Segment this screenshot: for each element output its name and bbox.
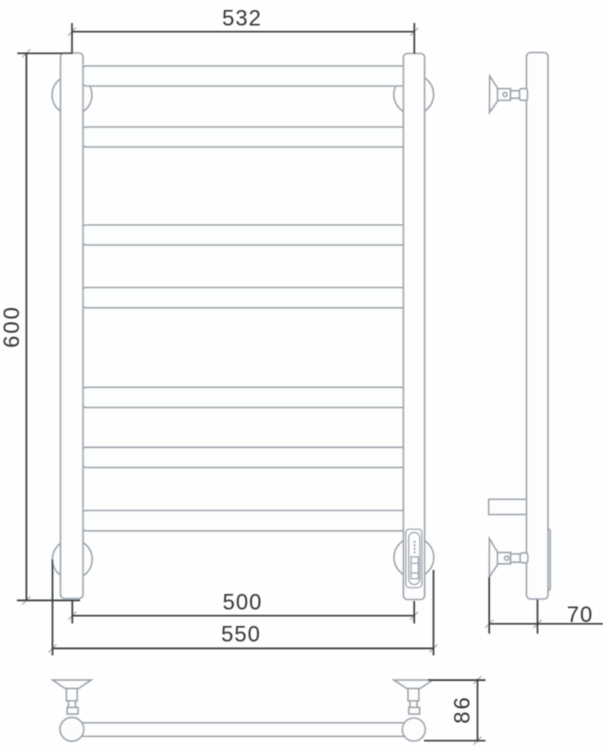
svg-text:86: 86 <box>450 695 475 723</box>
svg-text:500: 500 <box>223 590 263 615</box>
svg-text:550: 550 <box>221 622 261 647</box>
svg-text:70: 70 <box>567 602 593 627</box>
svg-text:600: 600 <box>0 305 24 348</box>
svg-text:532: 532 <box>222 6 262 31</box>
